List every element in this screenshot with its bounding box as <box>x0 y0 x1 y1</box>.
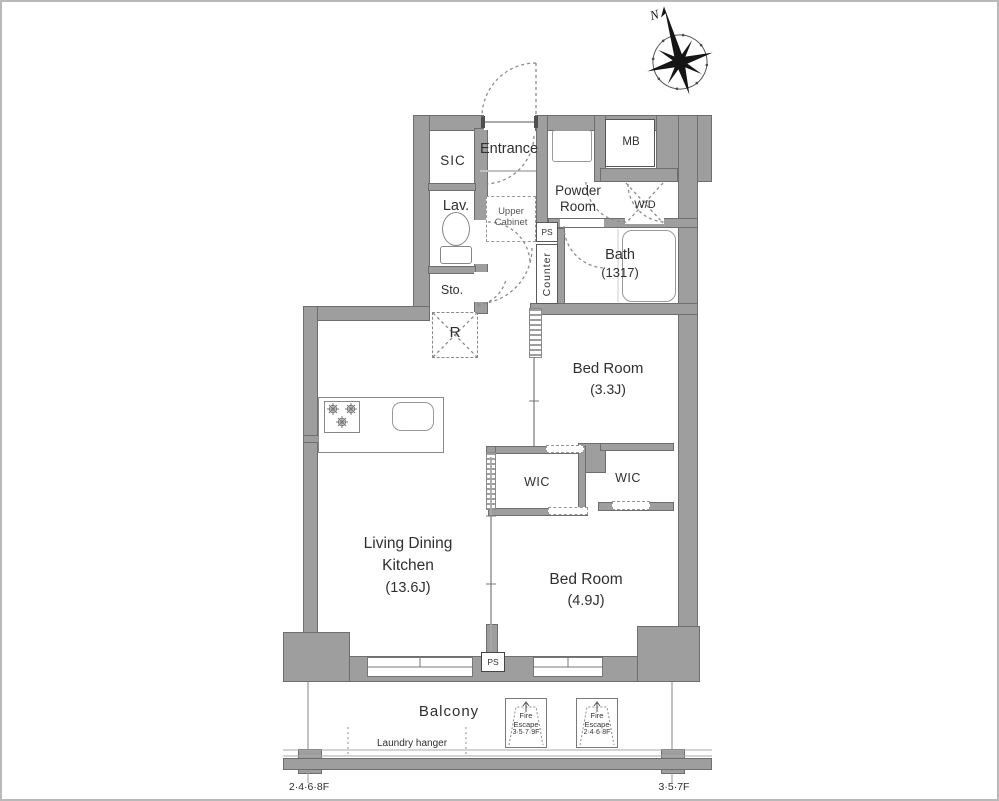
entrance-step-line <box>480 170 536 172</box>
label-floors-right: 3·5·7F <box>659 781 690 793</box>
wall-step <box>303 306 430 321</box>
pipe-space-top: PS <box>536 222 558 242</box>
wall-bath-bottom <box>530 303 698 315</box>
wall-mb-bottom <box>600 168 678 182</box>
wall-wic-top-right <box>600 443 674 451</box>
wic-left-door-bottom <box>548 507 588 515</box>
counter-box: Counter <box>536 244 558 304</box>
label-bath: Bath <box>605 247 635 264</box>
compass-north-label: N <box>647 6 662 23</box>
label-ldk: Living Dining Kitchen (13.6J) <box>364 533 453 599</box>
label-bedroom1-size: (3.3J) <box>590 381 626 397</box>
pipe-space-top-label: PS <box>541 227 552 237</box>
label-powder-room: Powder Room <box>555 183 601 214</box>
label-entrance: Entrance <box>480 141 538 158</box>
label-balcony: Balcony <box>419 703 479 720</box>
wall-left-upper <box>413 115 430 313</box>
wall-partition-stub-bottom <box>486 624 498 654</box>
window-bedroom2 <box>533 657 603 677</box>
sink-icon <box>392 402 434 431</box>
pipe-space-bottom-label: PS <box>487 657 498 667</box>
toilet-tank-icon <box>440 246 472 264</box>
entrance-door-jamb-left <box>481 116 485 128</box>
label-sic: SIC <box>440 153 466 169</box>
wic-right-door <box>612 501 650 510</box>
balcony-rail-bar <box>283 758 712 770</box>
wall-block-bottom-left <box>283 632 350 682</box>
label-lav: Lav. <box>443 198 469 215</box>
fire-escape-right-label: Fire Escape 2·4·6·8F <box>576 712 618 738</box>
wall-right <box>678 115 698 638</box>
entrance-door-leaf <box>484 121 535 123</box>
wic-left-door-top <box>546 445 584 453</box>
floor-plan: PS Counter PS Fire Escape 3·5·7·9F Fire … <box>0 0 999 801</box>
label-wic-right: WIC <box>615 471 641 485</box>
label-wd: W/D <box>634 199 655 212</box>
toilet-bowl-icon <box>442 212 470 246</box>
label-mb: MB <box>622 136 639 149</box>
wall-left-lower <box>303 306 318 646</box>
shelf-hatch-bedroom1 <box>529 308 542 358</box>
stove-icon <box>324 401 360 433</box>
bath-door-opening <box>560 219 604 227</box>
wall-entrance-right <box>536 115 548 229</box>
storage-door-opening <box>474 272 488 302</box>
label-floors-left: 2·4·6·8F <box>289 781 329 793</box>
entrance-door-jamb-right <box>534 116 538 128</box>
entrance-door-opening <box>484 116 535 130</box>
label-refrigerator: R <box>450 324 461 341</box>
wall-bath-left <box>557 228 565 308</box>
window-ldk <box>367 657 473 677</box>
label-wic-left: WIC <box>524 475 550 489</box>
label-storage: Sto. <box>441 283 463 297</box>
wall-sic-lav <box>428 183 476 191</box>
label-upper-cabinet: Upper Cabinet <box>495 207 528 229</box>
counter-label: Counter <box>541 252 553 296</box>
pipe-space-bottom: PS <box>481 652 505 672</box>
label-laundry-hanger: Laundry hanger <box>377 738 447 750</box>
wall-wic-mid <box>578 446 586 512</box>
compass-icon: N <box>628 0 728 112</box>
label-bath-size: (1317) <box>601 266 639 281</box>
shelf-hatch-wic <box>486 452 496 510</box>
washbasin-icon <box>552 130 592 162</box>
wall-lav-sto <box>428 266 476 274</box>
label-bedroom1: Bed Room <box>573 360 644 377</box>
label-bedroom2: Bed Room <box>549 571 622 589</box>
label-bedroom2-size: (4.9J) <box>567 593 604 610</box>
fire-escape-left-label: Fire Escape 3·5·7·9F <box>505 712 547 738</box>
wall-block-bottom-right <box>637 626 700 682</box>
